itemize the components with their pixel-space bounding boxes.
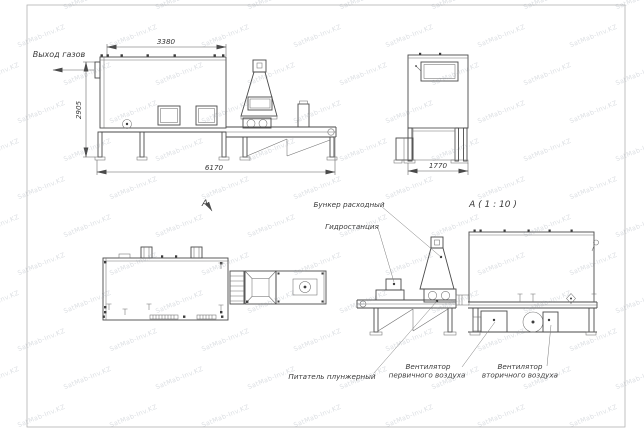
plan-bolts xyxy=(103,255,224,318)
hydraulic-station-label: Гидростанция xyxy=(325,222,379,231)
hopper-label: Бункер расходный xyxy=(313,200,384,209)
furnace-body-end xyxy=(408,55,468,128)
feeder-plan xyxy=(230,271,326,304)
side-view: 3380 2905 6170 Выход газов xyxy=(33,37,337,175)
lifting-hook xyxy=(592,240,599,251)
furnace-body-detail xyxy=(468,230,599,336)
end-view: 1770 xyxy=(394,53,468,175)
secondary-air-fan xyxy=(523,312,558,332)
anchor-marks-plan xyxy=(107,263,224,315)
furnace-body-plan xyxy=(103,258,228,320)
plunger-feeder-label: Питатель плунжерный xyxy=(288,372,375,381)
detail-view: А ( 1 : 10 ) xyxy=(288,200,598,381)
callout-leaders xyxy=(374,206,551,373)
furnace-body-side xyxy=(95,54,229,160)
gas-outlet-flange xyxy=(95,62,100,78)
detail-title: А ( 1 : 10 ) xyxy=(468,200,517,210)
roof-bolts-detail xyxy=(474,230,573,232)
conveyor-detail xyxy=(357,300,456,335)
dim-bottom-6170: 6170 xyxy=(205,163,224,172)
chute-box xyxy=(298,104,309,127)
dim-bottom-1770: 1770 xyxy=(429,161,448,170)
dim-top-3380: 3380 xyxy=(157,37,176,46)
drawing-sheet: 3380 2905 6170 Выход газов xyxy=(0,0,644,430)
cad-drawing: 3380 2905 6170 Выход газов xyxy=(0,0,644,430)
end-hatch xyxy=(421,62,458,81)
hopper-tower-side xyxy=(241,60,277,128)
section-label: А xyxy=(201,199,208,209)
hydraulic-station xyxy=(376,279,404,300)
primary-fan-label-line2: первичного воздуха xyxy=(389,371,466,380)
hatch-1 xyxy=(158,106,180,125)
hatch-2 xyxy=(196,106,217,125)
side-box-end xyxy=(396,138,413,160)
secondary-fan-label-line2: вторичного воздуха xyxy=(482,371,558,380)
hopper-tower-detail xyxy=(420,237,469,305)
anchor-marks-detail xyxy=(518,294,597,302)
plan-view: А xyxy=(103,199,327,320)
dim-left-2905: 2905 xyxy=(74,100,83,119)
ash-box-end xyxy=(413,128,455,160)
roof-bolts xyxy=(101,54,225,56)
gas-outlet-label: Выход газов xyxy=(33,50,86,59)
